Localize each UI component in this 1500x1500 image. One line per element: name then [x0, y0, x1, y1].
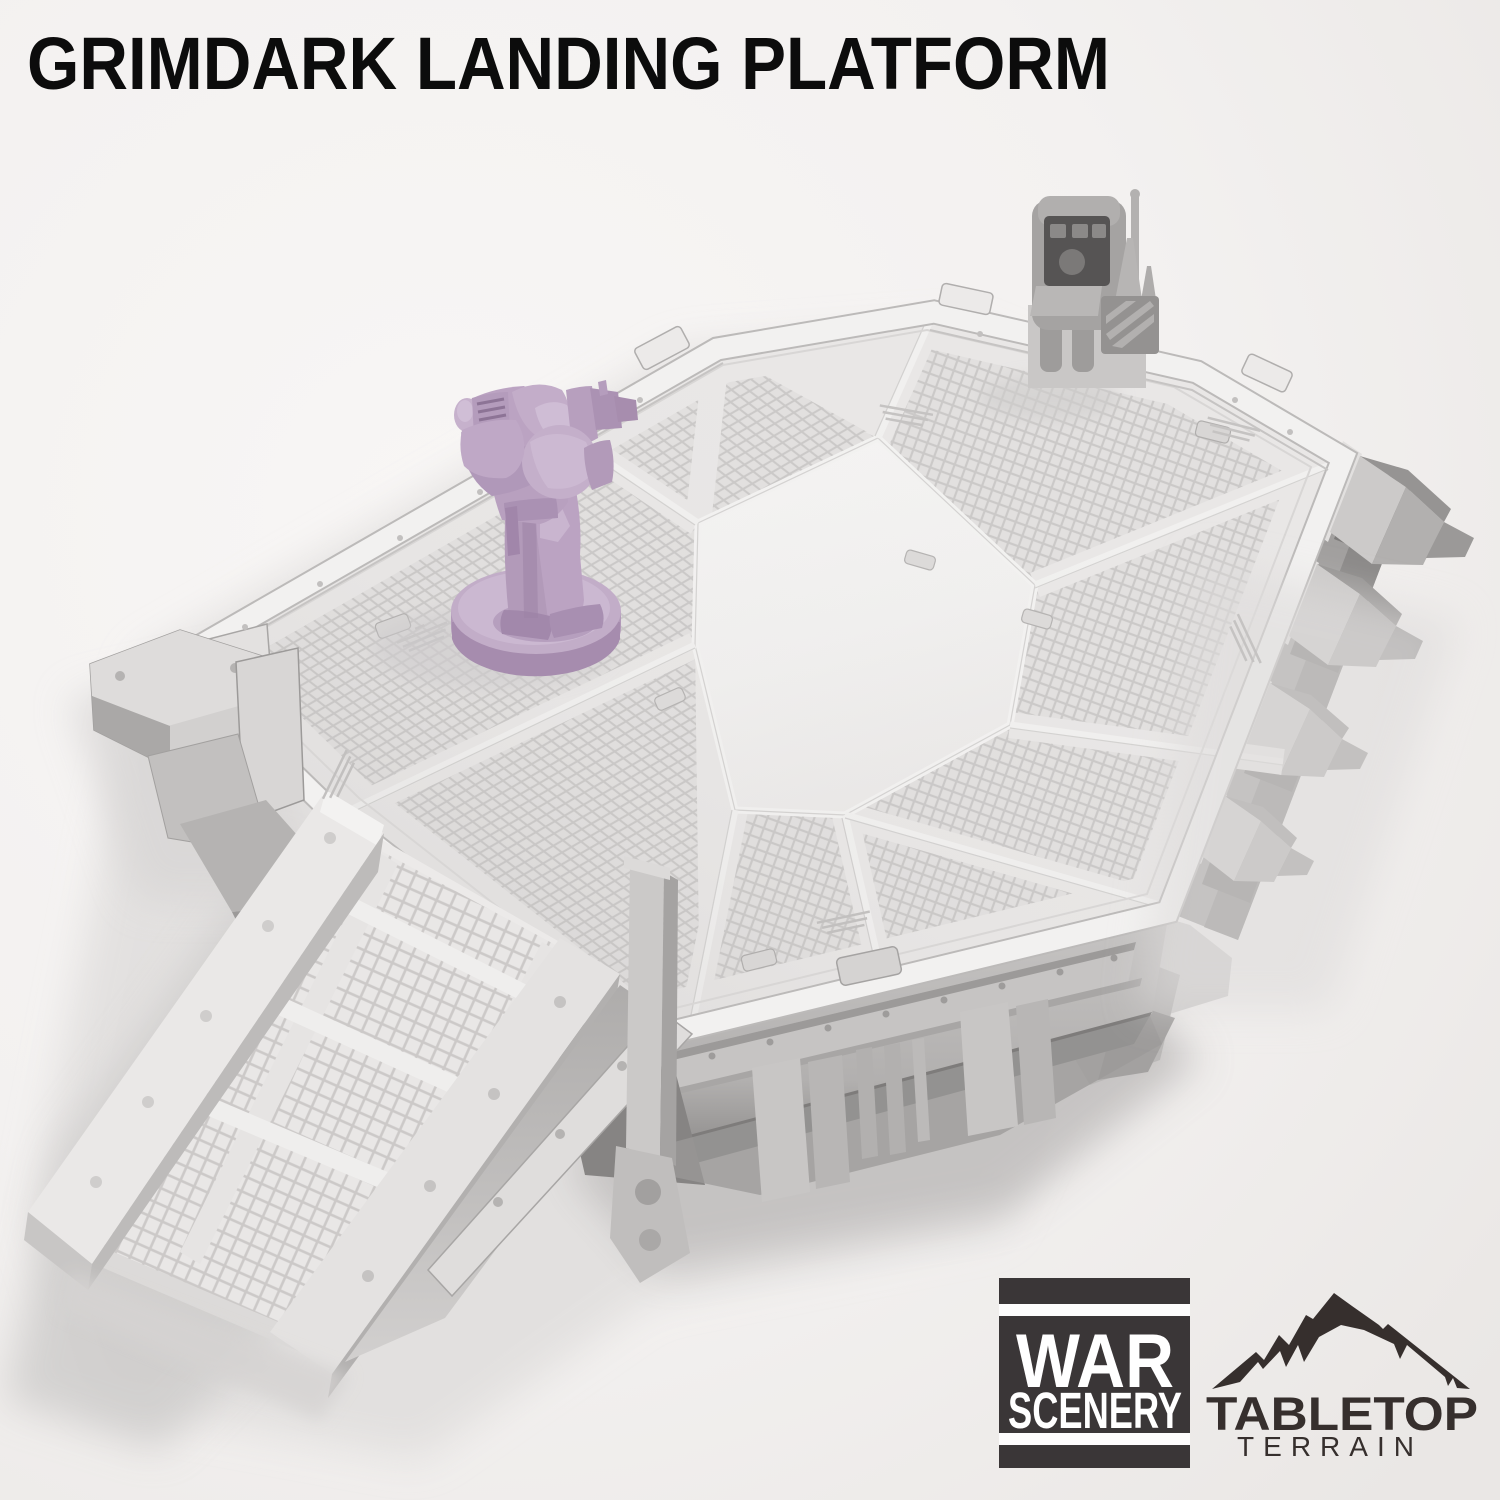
- svg-text:SCENERY: SCENERY: [1008, 1382, 1182, 1439]
- svg-text:TERRAIN: TERRAIN: [1237, 1431, 1423, 1462]
- svg-text:GRIMDARK LANDING PLATFORM: GRIMDARK LANDING PLATFORM: [27, 22, 1110, 105]
